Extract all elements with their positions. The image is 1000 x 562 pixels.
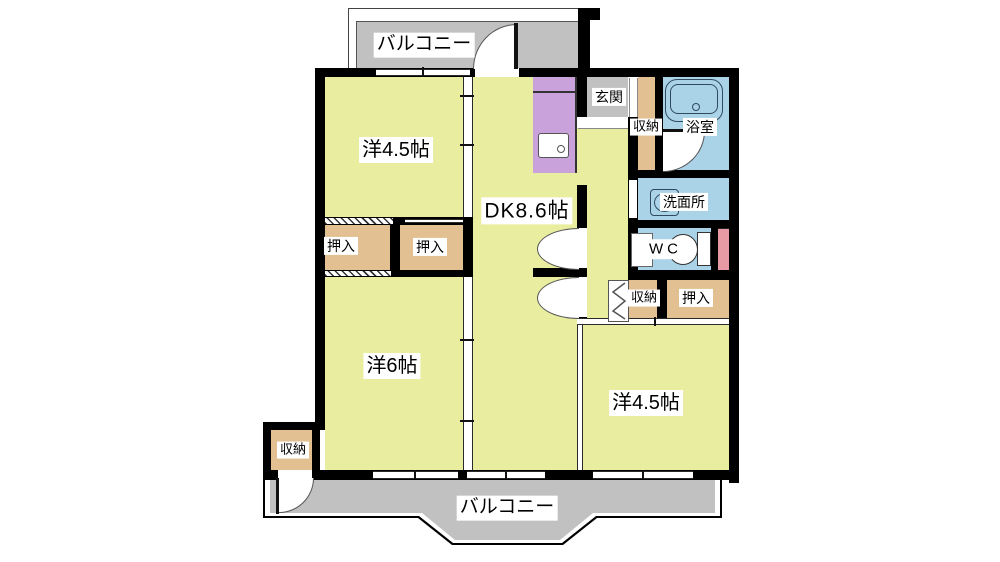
sliding-door-dk-room-east — [577, 325, 583, 470]
slide-tick-mid — [654, 317, 656, 326]
slide-tick-2 — [460, 144, 474, 146]
sliding-door-closet-bottom — [325, 271, 391, 276]
label-dining-kitchen: DK8.6帖 — [481, 197, 572, 224]
label-mid-storage: 収納 — [628, 290, 660, 307]
wall-pillar-closet-right — [463, 217, 473, 277]
wall-flag-stub — [578, 8, 600, 20]
label-closet-east: 押入 — [679, 289, 713, 307]
door-gap-washroom — [629, 180, 637, 218]
kitchen-counter-divider — [533, 91, 577, 93]
toilet-tank-icon — [697, 232, 711, 266]
slide-tick-3 — [460, 339, 474, 341]
label-room-west-upper: 洋4.5帖 — [359, 137, 433, 163]
sliding-door-room-ul-dk — [463, 77, 473, 217]
slide-tick-1 — [460, 95, 474, 97]
bifold-zigzag-icon — [609, 281, 628, 321]
label-hall-storage: 収納 — [630, 119, 662, 136]
label-room-east: 洋4.5帖 — [609, 390, 683, 416]
wall-entrance-left — [577, 68, 587, 117]
label-closet-left-1: 押入 — [324, 237, 358, 255]
wall-closet-divider-left — [390, 217, 400, 277]
door-gap-balcony-top — [475, 68, 519, 77]
hall-storage-door — [629, 78, 638, 117]
wall-wc-pink-edge — [711, 228, 718, 270]
window-tick-bottom-1 — [414, 470, 416, 479]
label-closet-left-2: 押入 — [413, 238, 447, 256]
wall-under-wc — [628, 270, 739, 280]
sliding-door-closet-top-1 — [325, 218, 393, 224]
balcony-top-door-leaf — [514, 23, 518, 69]
label-balcony-bottom: バルコニー — [457, 496, 558, 521]
label-bathroom: 浴室 — [683, 118, 717, 136]
mid-storage-bifold-door — [608, 280, 629, 322]
kitchen-counter-edge — [575, 77, 577, 173]
label-balcony-top: バルコニー — [374, 33, 475, 58]
kitchen-sink-drain-icon — [557, 145, 565, 153]
wall-under-bath-block — [628, 170, 739, 178]
label-storage-bottom-left: 収納 — [277, 442, 309, 459]
slide-tick-4 — [460, 420, 474, 422]
entrance-step — [578, 117, 628, 129]
label-washroom: 洗面所 — [660, 193, 708, 211]
label-toilet: WC — [643, 239, 685, 259]
window-tick-top — [422, 67, 424, 77]
window-tick-bottom-3 — [642, 470, 644, 479]
sliding-door-closet-top-2 — [405, 219, 463, 223]
sliding-door-above-room-east — [577, 318, 729, 325]
wall-washroom-wc — [638, 220, 739, 228]
label-entrance: 玄関 — [592, 88, 626, 106]
balcony-bottom-door-leaf — [276, 478, 279, 514]
window-tick-bottom-2 — [505, 470, 507, 479]
bathtub-drain-icon — [692, 103, 700, 111]
floorplan-canvas: バルコニー 洋4.5帖 DK8.6帖 玄関 収納 浴室 洗面所 WC 収納 押入… — [0, 0, 1000, 562]
sliding-door-room-ll-dk — [463, 277, 473, 470]
label-room-west-lower: 洋6帖 — [363, 353, 420, 379]
kitchen-sink-icon — [538, 133, 569, 158]
wall-left-lower — [315, 277, 325, 430]
